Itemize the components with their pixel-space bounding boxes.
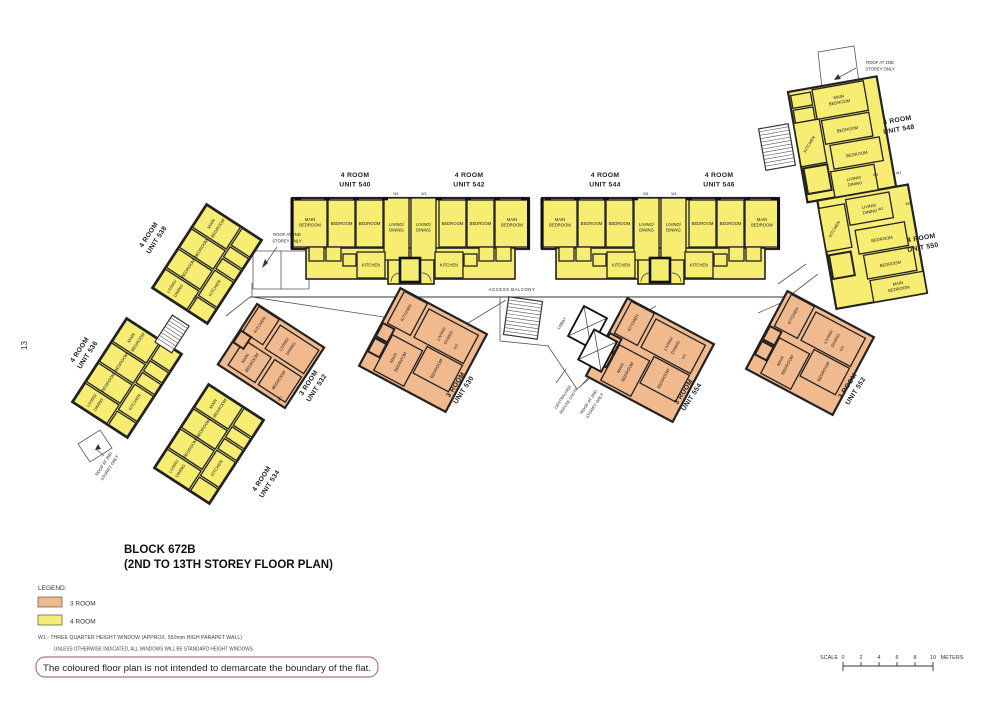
boundary-note-text: The coloured floor plan is not intended …	[43, 663, 371, 673]
room	[309, 247, 324, 261]
access-balcony-label: ACCESS BALCONY	[489, 287, 535, 292]
roof-note-rotated: ROOF AT 2NDSTOREY ONLY	[94, 450, 120, 481]
room-label: BEDROOM	[359, 221, 381, 226]
scale-label: SCALE	[820, 655, 838, 661]
room	[479, 247, 494, 261]
title-line1: BLOCK 672B	[124, 544, 196, 556]
room	[714, 254, 727, 266]
refuse-chute-note: CENTRALISEDREFUSE CHUTE	[552, 382, 579, 414]
roof-note-rotated: ROOF AT 2NDSTOREY ONLY	[579, 388, 605, 419]
room-label: BEDROOM	[751, 223, 773, 228]
room	[576, 247, 591, 261]
room-label: BEDROOM	[609, 221, 631, 226]
scale-bar	[843, 662, 933, 671]
wall-segment	[465, 197, 471, 200]
unit-4room-tilted: MAINBEDROOMBEDROOMBEDROOMLIVING/DININGKI…	[154, 384, 264, 504]
room-label: LIVING/	[666, 222, 682, 227]
walkway-left	[226, 297, 250, 316]
room	[593, 254, 606, 266]
unit-label: UNIT 542	[453, 182, 485, 189]
unit-label: 4 ROOM	[705, 172, 734, 179]
wall-segment	[632, 197, 638, 200]
room-label: MAIN	[757, 217, 767, 222]
scale-tick-3: 6	[895, 655, 898, 661]
scale-tick-0: 0	[841, 655, 844, 661]
staircase	[759, 124, 796, 171]
unit-label: UNIT 544	[589, 182, 621, 189]
window-note-line2: UNLESS OTHERWISE INDICATED, ALL WINDOWS …	[54, 647, 254, 653]
roof-outline-left	[253, 251, 309, 289]
room	[326, 247, 341, 261]
unit-label-group: 4 ROOMUNIT 548	[881, 114, 915, 136]
window-mark-label: W1	[671, 192, 676, 196]
unit-label: UNIT 540	[339, 182, 371, 189]
wall-segment	[541, 198, 544, 249]
unit-label: 4 ROOM	[455, 172, 484, 179]
room-label: DINING	[389, 228, 404, 233]
wall-segment	[324, 197, 330, 200]
roof-note: STOREY ONLY	[865, 67, 895, 72]
room-label: DINING	[416, 228, 431, 233]
wall-segment	[603, 197, 609, 200]
plan-units: MAINBEDROOMBEDROOMBEDROOMLIVING/DININGLI…	[69, 60, 940, 504]
room-label: LIVING/	[389, 222, 405, 227]
wall-segment	[574, 197, 580, 200]
wall-segment	[436, 197, 442, 200]
wall-segment	[353, 197, 359, 200]
room-label: KITCHEN	[690, 263, 708, 268]
unit-pair: MAINBEDROOMBEDROOMBEDROOMLIVING/DININGLI…	[291, 172, 531, 284]
staircase	[504, 297, 543, 339]
roof-note: ROOF AT 2ND	[866, 60, 894, 65]
room	[791, 92, 813, 108]
scale-tick-2: 4	[877, 655, 880, 661]
legend-swatch-4room	[38, 615, 62, 625]
room-label: BEDROOM	[299, 223, 321, 228]
lobby-label: LOBBY	[556, 316, 568, 330]
room	[829, 252, 855, 279]
unit-3room: KITCHENLIVING/DININGBEDROOMMAINBEDROOM	[218, 304, 324, 408]
room	[400, 258, 420, 282]
wall-segment	[545, 197, 551, 200]
room-label: BEDROOM	[581, 221, 603, 226]
unit-3room: KITCHENLIVING/DININGBEDROOMMAINBEDROOM	[359, 288, 487, 412]
wall-segment	[521, 197, 527, 200]
unit-pair: MAINBEDROOMBEDROOMBEDROOMLIVING/DININGLI…	[541, 172, 781, 284]
room-label: BEDROOM	[470, 221, 492, 226]
wall-segment	[777, 198, 780, 249]
window-note-line1: W1 - THREE QUARTER HEIGHT WINDOW (APPROX…	[38, 635, 242, 641]
unit-pair-right-wing: MAINBEDROOMBEDROOMBEDROOMKITCHENLIVING/D…	[788, 74, 927, 310]
room-label: BEDROOM	[549, 223, 571, 228]
unit-label-group: 4 ROOMUNIT 534	[251, 464, 282, 499]
wall-segment	[527, 198, 530, 249]
room	[496, 247, 511, 261]
room-label: BEDROOM	[692, 221, 714, 226]
room-label: LIVING/	[416, 222, 432, 227]
room	[746, 247, 761, 261]
room	[804, 164, 832, 194]
scale-tick-5: 10	[930, 655, 936, 661]
room-label: KITCHEN	[362, 263, 380, 268]
room	[343, 254, 356, 266]
room-label: BEDROOM	[720, 221, 742, 226]
wall-segment	[295, 197, 301, 200]
room	[559, 247, 574, 261]
room-label: DINING	[666, 228, 681, 233]
unit-label: 4 ROOM	[341, 172, 370, 179]
page-number: 13	[20, 341, 29, 350]
arrow-bottomleft-roof	[95, 444, 101, 450]
room-label: KITCHEN	[440, 263, 458, 268]
room-label: BEDROOM	[501, 223, 523, 228]
unit-label-group: 4 ROOMUNIT 538	[138, 220, 169, 255]
scale-tick-4: 8	[913, 655, 916, 661]
unit-4room-tilted: MAINBEDROOMBEDROOMBEDROOMLIVING/DININGKI…	[152, 204, 262, 324]
scale-units: METERS	[941, 655, 964, 661]
window-mark-label: W1	[421, 192, 426, 196]
window-mark-label: W1	[643, 192, 648, 196]
arrow-left-roof	[262, 259, 268, 268]
room-label: MAIN	[507, 217, 517, 222]
room	[650, 258, 670, 282]
room	[464, 254, 477, 266]
window-mark-label: W1	[393, 192, 398, 196]
room-label: DINING	[639, 228, 654, 233]
wall-segment	[382, 197, 388, 200]
roof-note: ROOF AT 2ND	[273, 232, 301, 237]
room-label: BEDROOM	[331, 221, 353, 226]
room-label: BEDROOM	[442, 221, 464, 226]
room-label: KITCHEN	[612, 263, 630, 268]
legend-label-4room: 4 ROOM	[70, 619, 96, 626]
room-label: LIVING/	[639, 222, 655, 227]
unit-label: UNIT 546	[703, 182, 735, 189]
room	[729, 247, 744, 261]
wall-segment	[771, 197, 777, 200]
legend-label-3room: 3 ROOM	[70, 601, 96, 608]
wall-segment	[744, 197, 750, 200]
wall-segment	[715, 197, 721, 200]
roof-note: STOREY ONLY	[272, 239, 302, 244]
scale-tick-1: 2	[859, 655, 862, 661]
wall-segment	[494, 197, 500, 200]
window-mark-label: W1	[896, 171, 902, 176]
legend-heading: LEGEND:	[38, 585, 67, 592]
room-label: MAIN	[555, 217, 565, 222]
floor-plan-canvas: MAINBEDROOMBEDROOMBEDROOMLIVING/DININGLI…	[0, 0, 1000, 708]
legend-swatch-3room	[38, 597, 62, 607]
wall-segment	[686, 197, 692, 200]
title-line2: (2ND TO 13TH STOREY FLOOR PLAN)	[124, 559, 333, 571]
unit-label: 4 ROOM	[591, 172, 620, 179]
room-label: MAIN	[305, 217, 315, 222]
